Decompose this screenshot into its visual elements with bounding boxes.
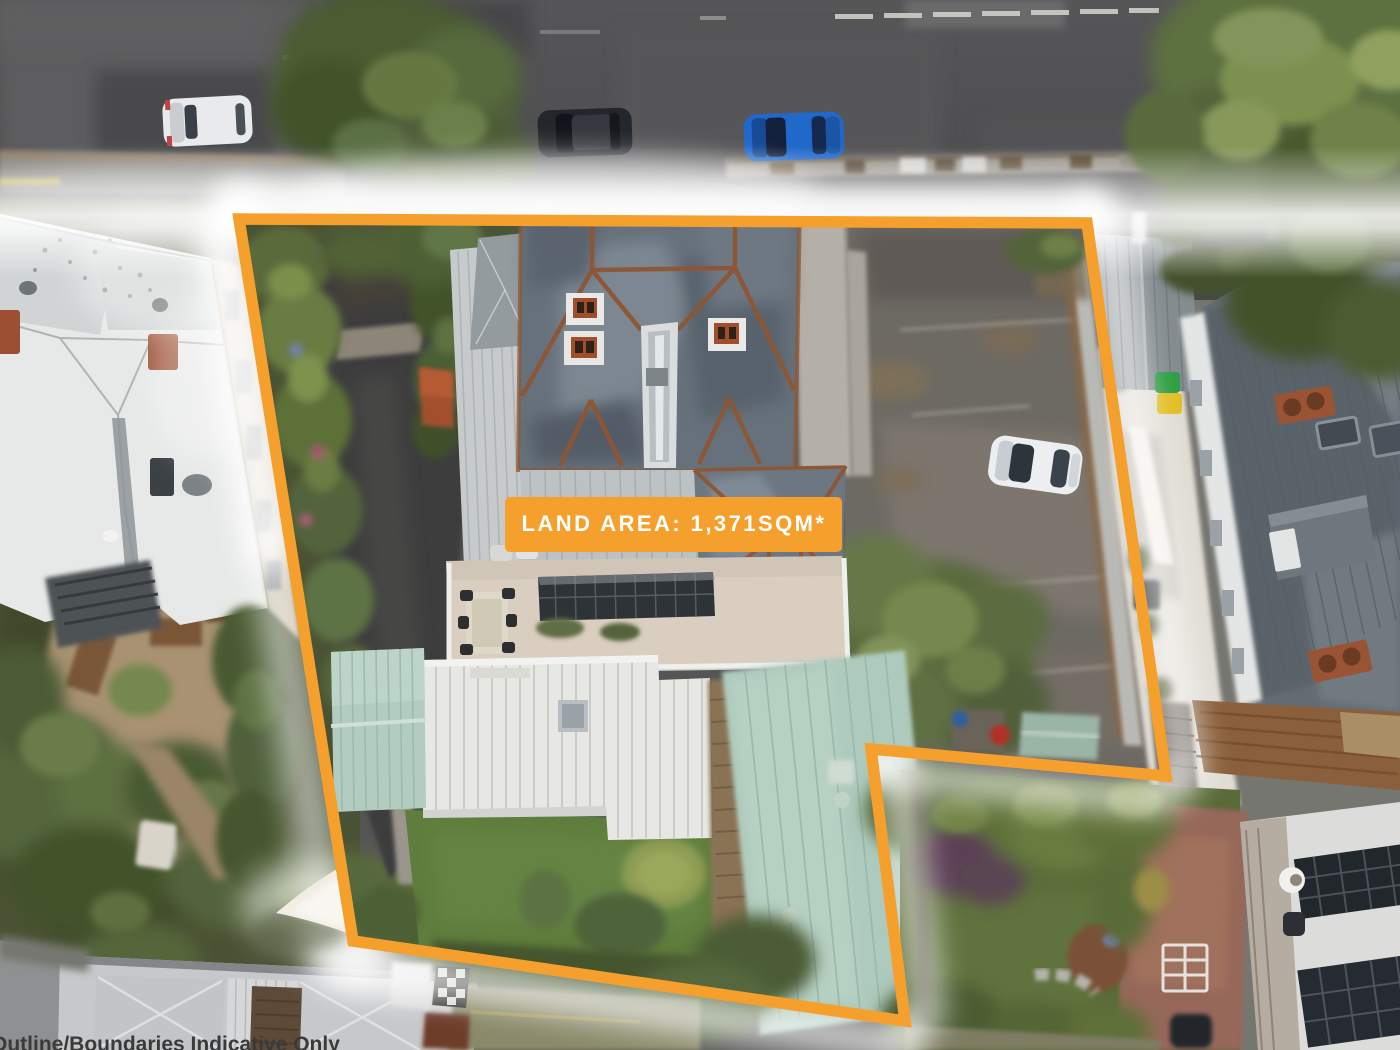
svg-text:LAND AREA: 1,371SQM*: LAND AREA: 1,371SQM* [522, 511, 827, 536]
svg-text:Outline/Boundaries Indicative: Outline/Boundaries Indicative Only [0, 1033, 340, 1050]
